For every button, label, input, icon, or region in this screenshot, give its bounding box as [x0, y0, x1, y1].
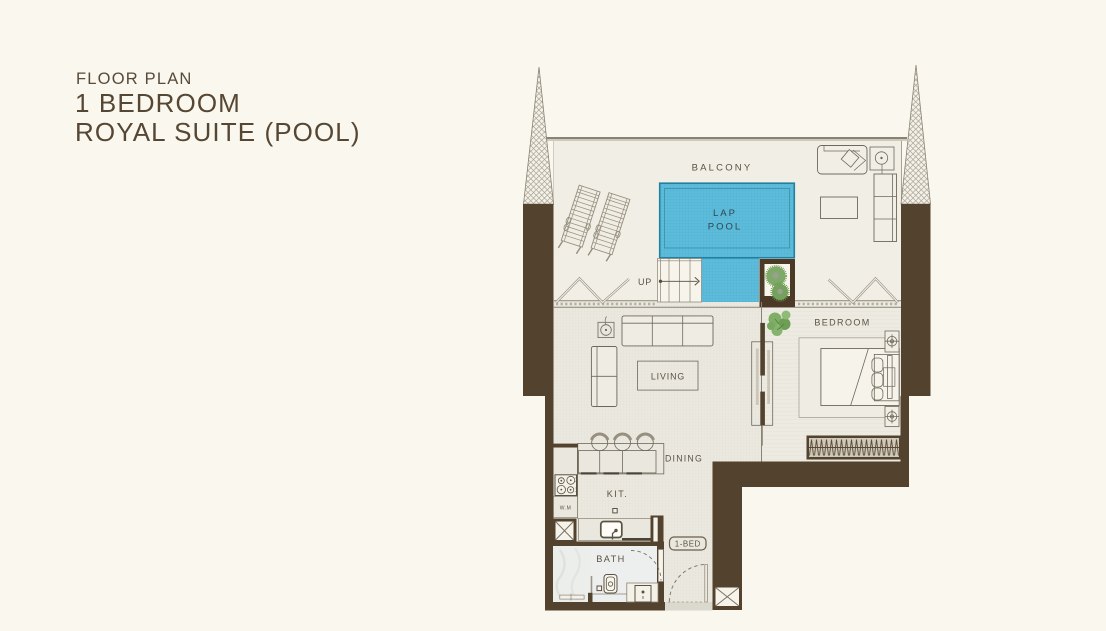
svg-text:BEDROOM: BEDROOM — [814, 318, 870, 328]
svg-text:W.M: W.M — [560, 506, 572, 512]
svg-text:BALCONY: BALCONY — [692, 163, 753, 174]
svg-text:1-BED: 1-BED — [675, 540, 701, 549]
svg-text:LAP: LAP — [713, 208, 737, 219]
svg-text:ROYAL SUITE (POOL): ROYAL SUITE (POOL) — [75, 117, 361, 147]
svg-text:BATH: BATH — [596, 554, 625, 564]
svg-text:POOL: POOL — [708, 222, 742, 233]
svg-text:DINING: DINING — [665, 454, 703, 464]
svg-text:KIT.: KIT. — [607, 489, 629, 499]
svg-text:UP: UP — [638, 277, 652, 287]
svg-text:1 BEDROOM: 1 BEDROOM — [75, 88, 241, 118]
svg-text:LIVING: LIVING — [651, 372, 685, 382]
svg-text:FLOOR PLAN: FLOOR PLAN — [76, 70, 193, 88]
